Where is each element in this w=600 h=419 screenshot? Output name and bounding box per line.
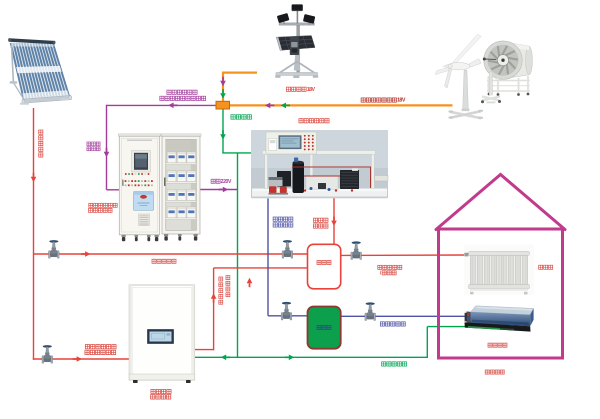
svg-text:18V: 18V	[307, 87, 316, 93]
svg-text:18V: 18V	[397, 98, 406, 104]
svg-text:220V: 220V	[221, 179, 232, 185]
